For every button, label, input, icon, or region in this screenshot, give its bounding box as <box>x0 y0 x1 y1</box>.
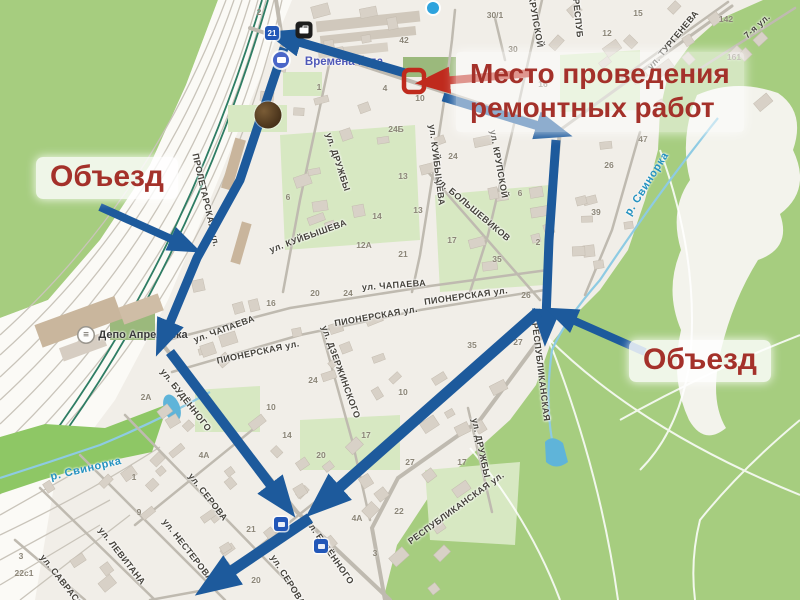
detour-map-image: ул. ДРУЖБЫул. КУЙБЫШЕВАул. КУЙБЫШЕВАул. … <box>0 0 800 600</box>
map-canvas <box>0 0 800 600</box>
